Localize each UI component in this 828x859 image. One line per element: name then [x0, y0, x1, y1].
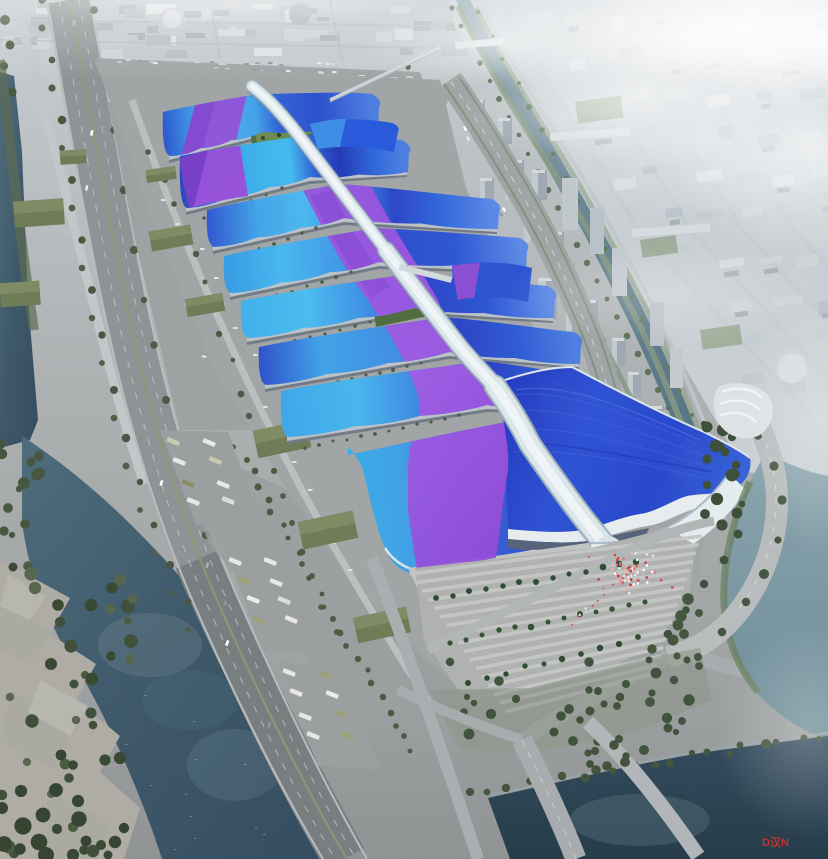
svg-text:D汉N: D汉N — [762, 835, 789, 849]
